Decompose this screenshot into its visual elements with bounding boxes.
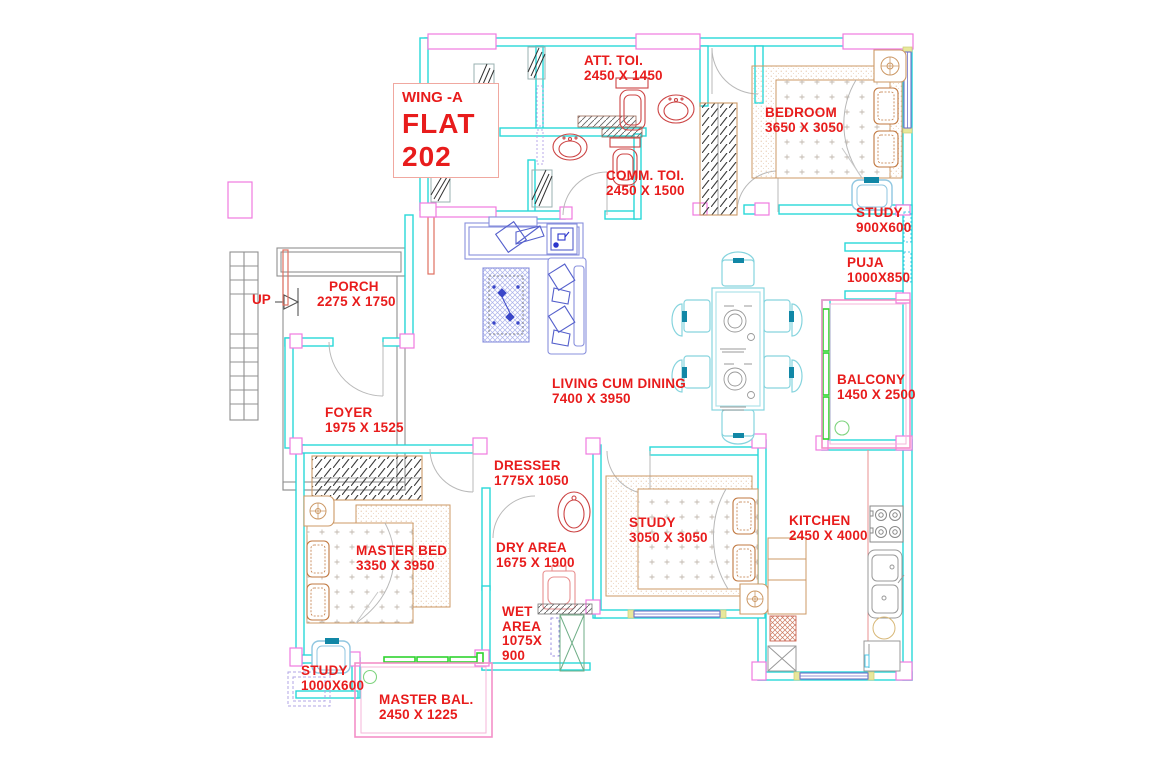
- room-label-balcony: BALCONY1450 X 2500: [837, 373, 916, 402]
- room-label-living: LIVING CUM DINING7400 X 3950: [552, 377, 686, 406]
- room-label-dresser: DRESSER1775X 1050: [494, 459, 569, 488]
- room-label-bedroom: BEDROOM3650 X 3050: [765, 106, 844, 135]
- room-label-master-bed: MASTER BED3350 X 3950: [356, 544, 447, 573]
- flat-label: FLAT: [402, 108, 498, 140]
- flat-number: 202: [402, 140, 498, 174]
- room-label-att-toi: ATT. TOI.2450 X 1450: [584, 54, 663, 83]
- living-furniture: [465, 217, 586, 354]
- title-block: WING -A FLAT 202: [393, 83, 499, 178]
- room-label-study-mid: STUDY3050 X 3050: [629, 516, 708, 545]
- room-label-master-bal: MASTER BAL.2450 X 1225: [379, 693, 473, 722]
- room-label-study-btm: STUDY1000X600: [301, 664, 364, 693]
- wing-label: WING -A: [402, 88, 498, 108]
- up-label: UP: [252, 292, 271, 307]
- room-label-study-top: STUDY900X600: [856, 206, 911, 235]
- room-label-puja: PUJA1000X850: [847, 256, 910, 285]
- room-label-wet-area: WET AREA 1075X 900: [502, 605, 560, 663]
- room-label-kitchen: KITCHEN2450 X 4000: [789, 514, 868, 543]
- floor-plan-page: WING -A FLAT 202 UP ATT. TOI.2450 X 1450…: [0, 0, 1165, 768]
- study-mid-furniture: [606, 476, 768, 614]
- kitchen-fixtures: [768, 450, 904, 671]
- room-label-comm-toi: COMM. TOI.2450 X 1500: [606, 169, 685, 198]
- room-label-porch: PORCH2275 X 1750: [317, 280, 396, 309]
- room-label-foyer: FOYER1975 X 1525: [325, 406, 404, 435]
- room-label-dry-area: DRY AREA1675 X 1900: [496, 541, 575, 570]
- dining-set: [672, 252, 802, 444]
